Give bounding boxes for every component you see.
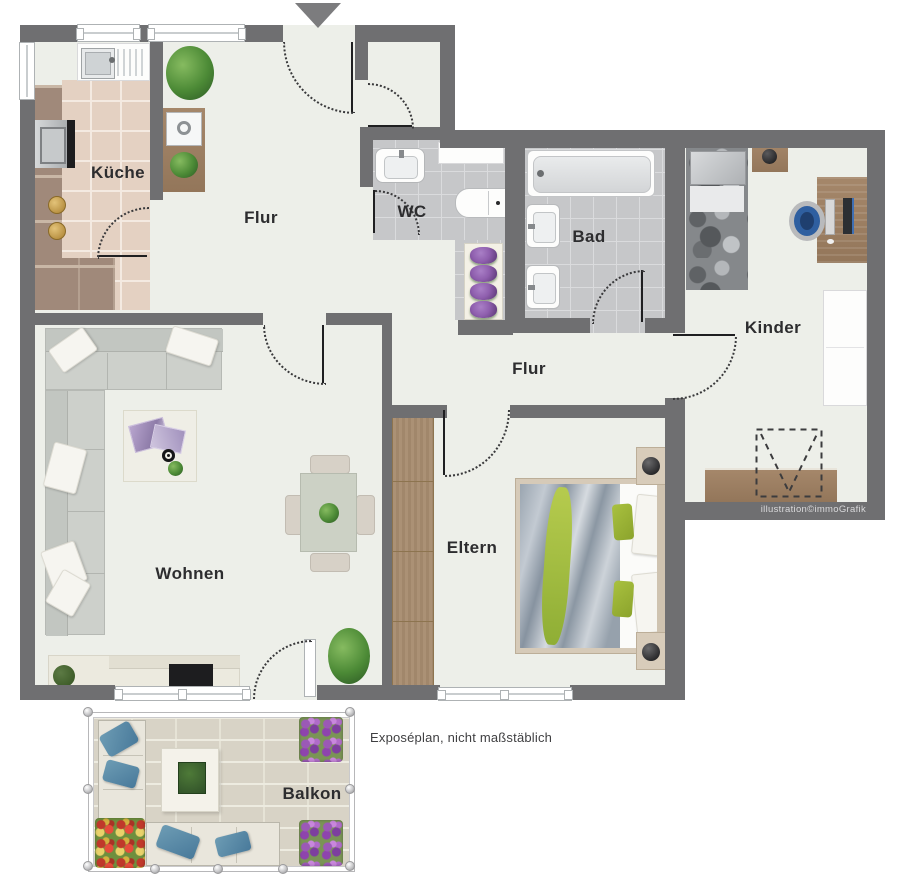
railing-post <box>213 864 223 874</box>
window-cap <box>564 690 573 700</box>
planned-furniture-marker <box>755 428 823 498</box>
wall-bath-south-left <box>513 318 590 333</box>
railing-post <box>278 864 288 874</box>
window-hall-top <box>148 24 245 42</box>
railing-post <box>83 861 93 871</box>
dining-chair-bottom <box>310 553 350 572</box>
window-cap <box>242 689 251 700</box>
railing-post <box>83 784 93 794</box>
window-kitchen-left <box>19 42 35 100</box>
kitchen-counter-bottom <box>45 258 115 310</box>
railing-post <box>345 861 355 871</box>
dining-chair-top <box>310 455 350 474</box>
bench-seam <box>103 789 143 790</box>
bath-sink-2-faucet <box>528 285 535 290</box>
window-cap <box>147 28 155 40</box>
bath-sink-2-icon <box>526 265 560 309</box>
room-label-flur-middle: Flur <box>512 359 546 379</box>
wall-living-north-left <box>33 313 263 325</box>
sofa-seam <box>68 511 105 512</box>
coffee-cup-icon <box>162 449 175 462</box>
chair-back <box>800 212 814 230</box>
bath-sink-1-icon <box>526 204 560 248</box>
kitchen-sink-icon <box>81 48 115 79</box>
headboard <box>657 479 665 653</box>
washer-cabinet-plant <box>170 152 198 178</box>
kitchen-drainboard <box>117 49 146 76</box>
window-cap <box>114 689 123 700</box>
sideboard-plant <box>53 665 75 687</box>
kitchen-stove <box>33 120 75 168</box>
washing-machine-icon <box>166 112 202 146</box>
kitchen-sink-counter <box>77 43 150 81</box>
wall-niche-west <box>355 25 368 80</box>
nightstand-top <box>636 447 666 485</box>
keyboard-icon <box>825 199 835 235</box>
window-cap <box>178 689 187 700</box>
wall-bath-east <box>665 148 685 333</box>
green-cushion <box>612 503 634 540</box>
room-label-balkon: Balkon <box>282 784 341 804</box>
railing-post <box>150 864 160 874</box>
kitchen-bowl-1 <box>48 196 66 214</box>
wall-bottom-3 <box>570 685 685 700</box>
window-glass <box>151 32 242 34</box>
washer-door <box>177 121 191 135</box>
balcony-table <box>161 748 219 812</box>
wall-bottom-2 <box>317 685 440 700</box>
window-cap <box>238 28 246 40</box>
wall-outer-east <box>867 130 885 520</box>
nightstand-lamp-icon <box>642 643 660 661</box>
wardrobe-section-line <box>393 481 433 482</box>
room-label-kinder: Kinder <box>745 318 801 338</box>
dining-table-plant <box>319 503 339 523</box>
wall-bottom-1 <box>20 685 115 700</box>
monitor-icon <box>843 198 854 234</box>
table-sprig <box>168 461 183 476</box>
lavender-plant-3 <box>470 283 497 300</box>
floor-plan: Küche Flur WC Bad Kinder Flur Wohnen Elt… <box>0 0 900 895</box>
kids-lamp-icon <box>762 149 777 164</box>
window-cap <box>76 28 84 40</box>
wardrobe-divider <box>826 347 864 348</box>
sofa-seam <box>166 353 167 390</box>
window-living-bottom <box>115 686 250 701</box>
toilet-seam <box>488 191 489 215</box>
illustrator-credit: illustration©immoGrafik <box>706 504 866 515</box>
wall-living-east <box>382 313 392 700</box>
wardrobe-section-line <box>393 621 433 622</box>
bath-sink-1-faucet <box>528 224 535 229</box>
wall-wc-west <box>360 140 373 187</box>
wc-faucet-icon <box>399 150 404 158</box>
room-label-kueche: Küche <box>91 163 145 183</box>
room-label-flur-entrance: Flur <box>244 208 278 228</box>
window-cap <box>437 690 446 700</box>
stove-door <box>40 127 66 164</box>
room-label-bad: Bad <box>572 227 605 247</box>
dining-table <box>300 473 357 552</box>
lavender-plant-4 <box>470 301 497 318</box>
coffee-table <box>123 410 197 482</box>
tv-icon <box>169 664 213 688</box>
green-cushion <box>612 580 634 617</box>
kitchen-faucet-icon <box>109 57 115 63</box>
washer-cabinet <box>163 108 205 192</box>
window-cap <box>500 690 509 700</box>
flower-planter <box>299 820 343 866</box>
flower-planter <box>95 818 145 868</box>
bath-sink-2-basin <box>533 273 556 304</box>
wc-toilet-icon <box>455 188 510 218</box>
disclaimer-text: Exposéplan, nicht maßstäblich <box>370 730 552 745</box>
wall-top-3 <box>245 25 283 42</box>
wall-wing-top <box>443 130 885 148</box>
bedroom-wardrobe <box>392 412 434 690</box>
window-glass <box>80 32 137 34</box>
room-label-eltern: Eltern <box>447 538 498 558</box>
wall-bath-west <box>505 148 525 333</box>
entrance-arrow-icon <box>295 3 341 28</box>
kids-wardrobe <box>823 290 867 406</box>
wardrobe-section-line <box>393 551 433 552</box>
nightstand-bottom <box>636 632 666 670</box>
wall-kitchen-east <box>150 42 163 200</box>
wall-eltern-north-left <box>392 405 447 418</box>
wall-wc-south <box>458 320 513 335</box>
window-eltern-bottom <box>438 687 572 701</box>
sofa-seam <box>107 353 108 390</box>
bathtub-inner <box>533 156 651 193</box>
room-label-wohnen: Wohnen <box>155 564 224 584</box>
lavender-plant-2 <box>470 265 497 282</box>
bathtub-icon <box>527 150 655 197</box>
window-glass <box>26 45 28 97</box>
double-bed <box>515 478 666 654</box>
railing-post <box>345 707 355 717</box>
flower-planter <box>299 717 343 762</box>
stove-panel <box>67 120 75 168</box>
window-kitchen-top <box>77 24 140 42</box>
lavender-console <box>464 243 503 320</box>
railing-post <box>83 707 93 717</box>
kitchen-bowl-2 <box>48 222 66 240</box>
desk-chair <box>789 201 825 241</box>
wc-sink-basin <box>384 156 418 179</box>
room-label-wc: WC <box>397 202 426 222</box>
wall-eltern-east <box>665 398 685 700</box>
mouse-icon <box>827 239 834 244</box>
bath-sink-1-basin <box>533 212 556 243</box>
sink-basin <box>85 52 111 75</box>
window-cap <box>133 28 141 40</box>
bathtub-faucet-icon <box>537 170 544 177</box>
railing-post <box>345 784 355 794</box>
toilet-button <box>496 201 500 205</box>
hall-plant <box>166 46 214 100</box>
kids-sheet <box>690 186 744 212</box>
nightstand-lamp-icon <box>642 457 660 475</box>
kids-bed <box>686 146 748 290</box>
wall-outer-left <box>20 25 35 700</box>
dining-chair-right <box>356 495 375 535</box>
wall-top-1 <box>20 25 77 42</box>
wc-sink-icon <box>375 148 425 183</box>
living-corner-plant <box>328 628 370 684</box>
balcony-table-plant <box>178 762 206 794</box>
lavender-plant-1 <box>470 247 497 264</box>
kids-pillow <box>690 151 746 185</box>
wall-eltern-north-right <box>510 405 668 418</box>
